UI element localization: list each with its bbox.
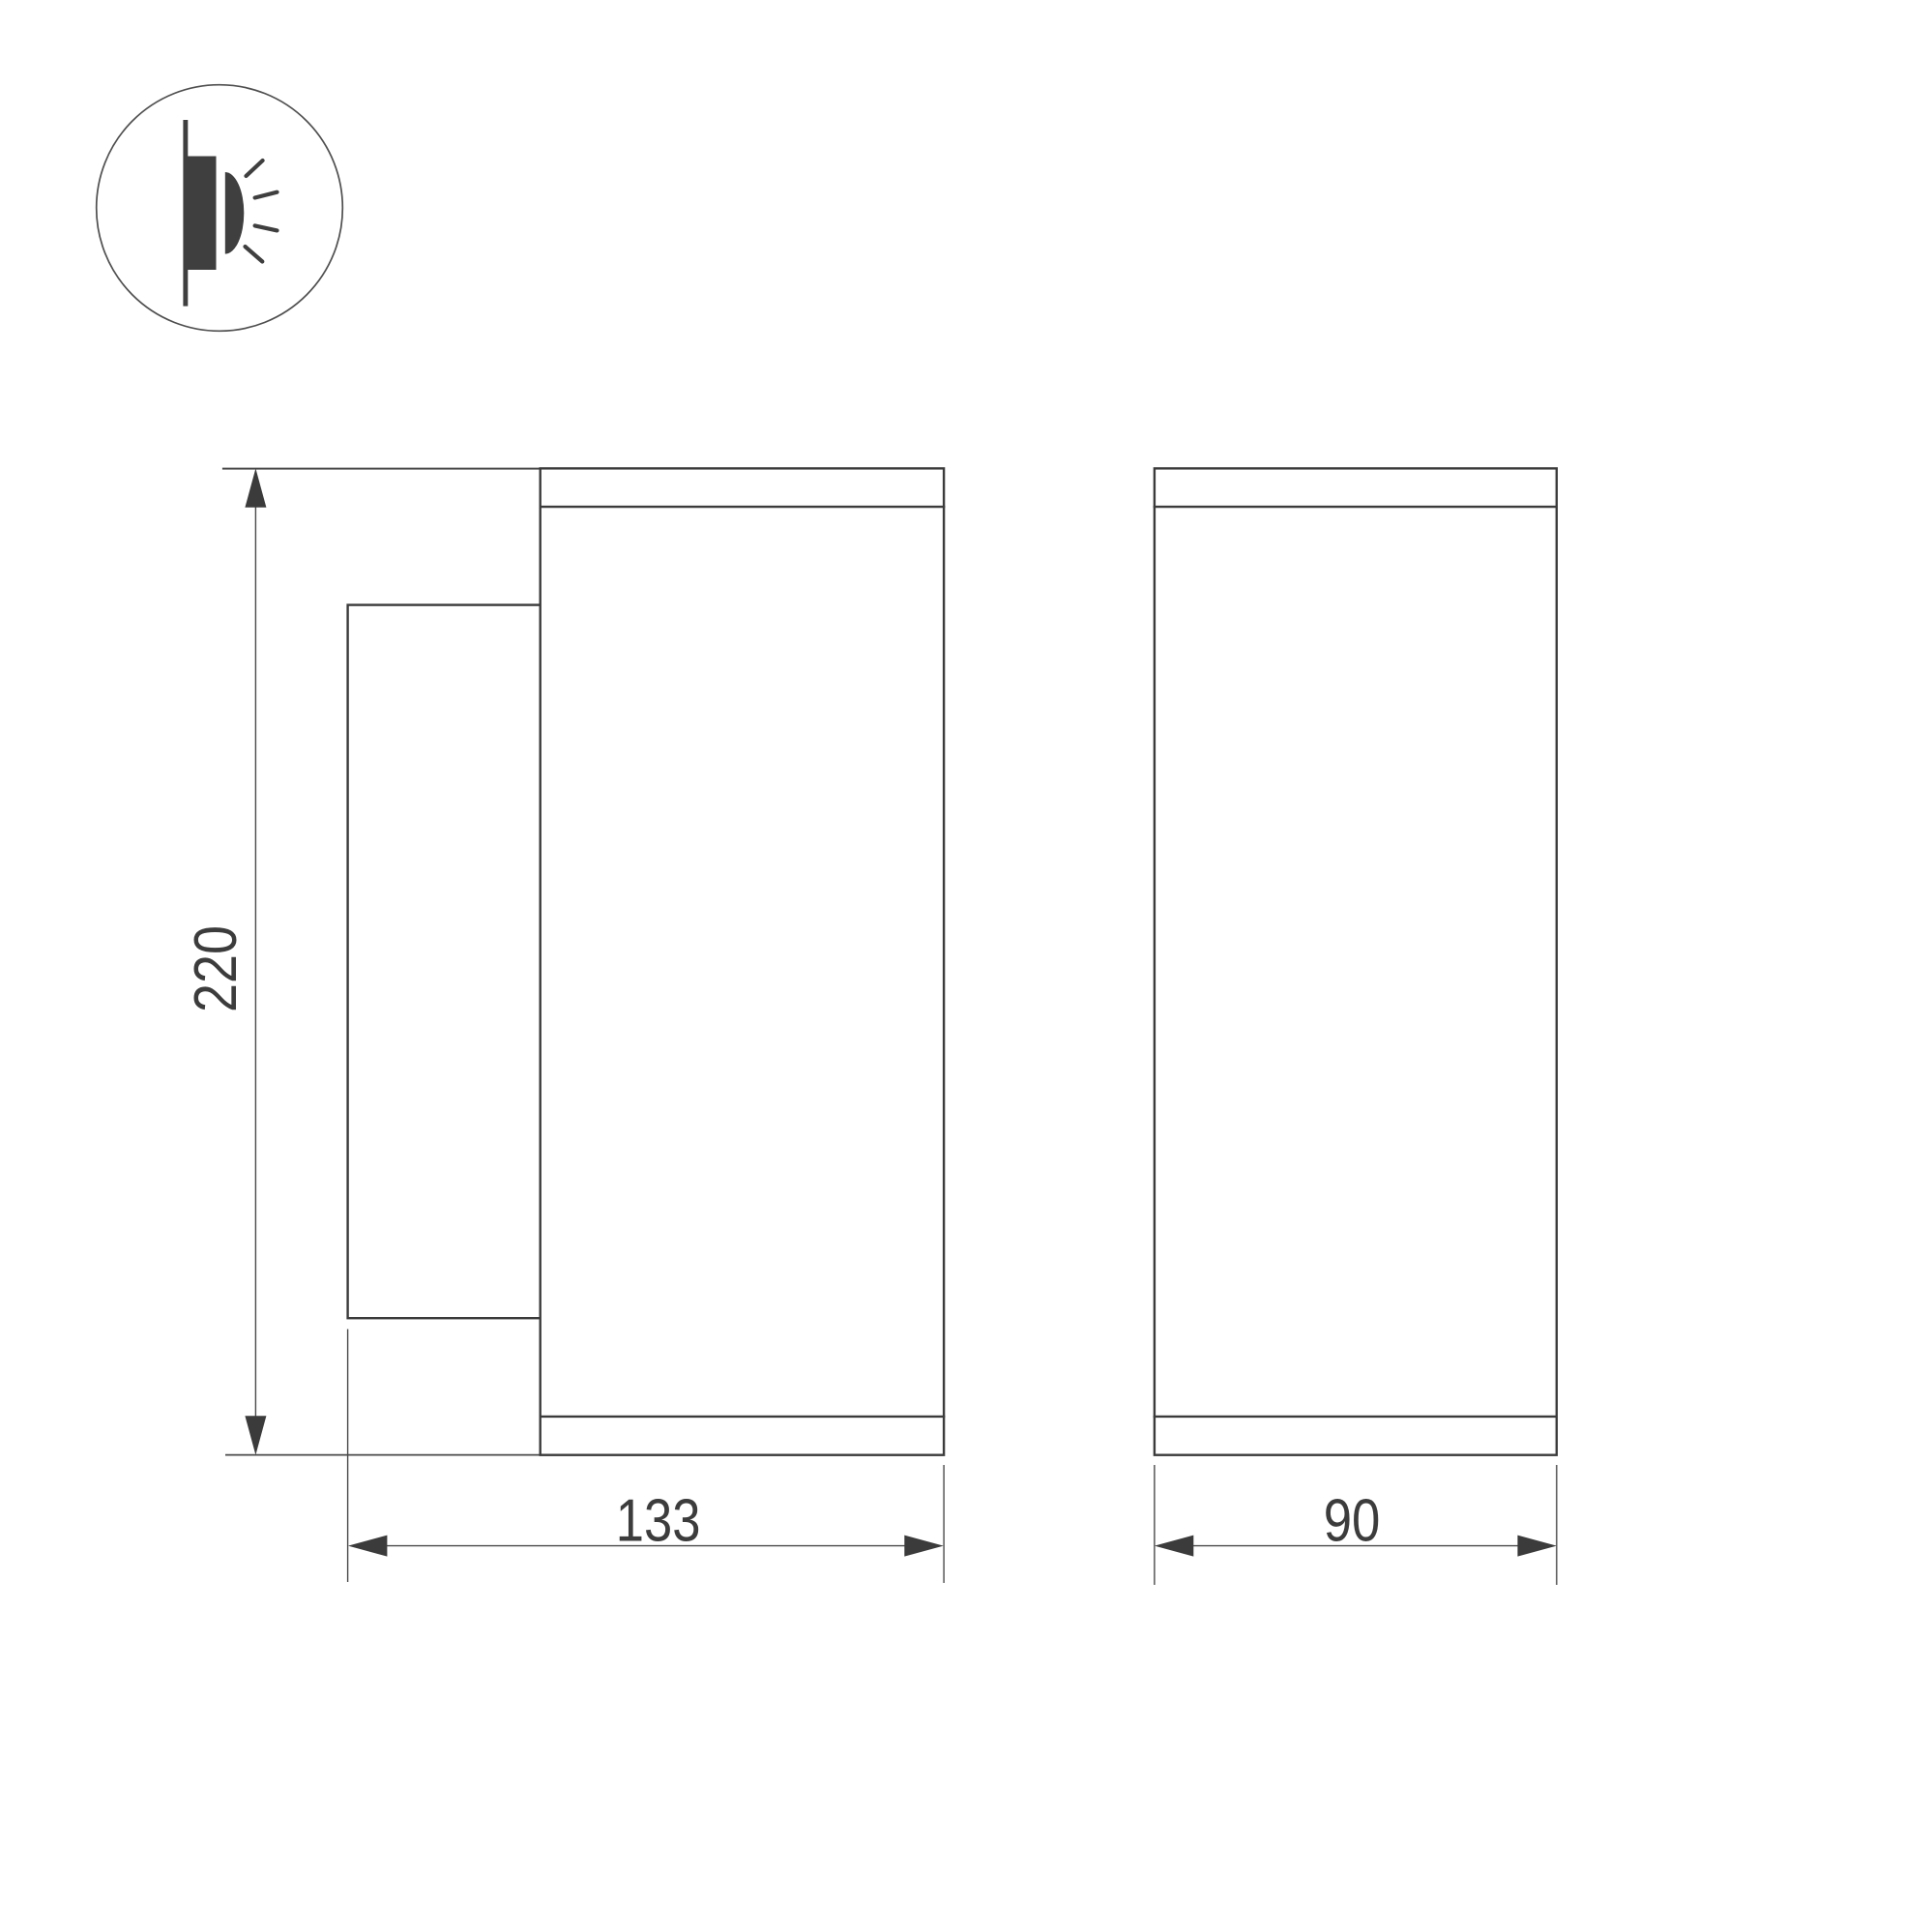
svg-text:90: 90: [1324, 1488, 1381, 1555]
svg-text:220: 220: [182, 925, 249, 1012]
svg-text:133: 133: [616, 1488, 701, 1555]
